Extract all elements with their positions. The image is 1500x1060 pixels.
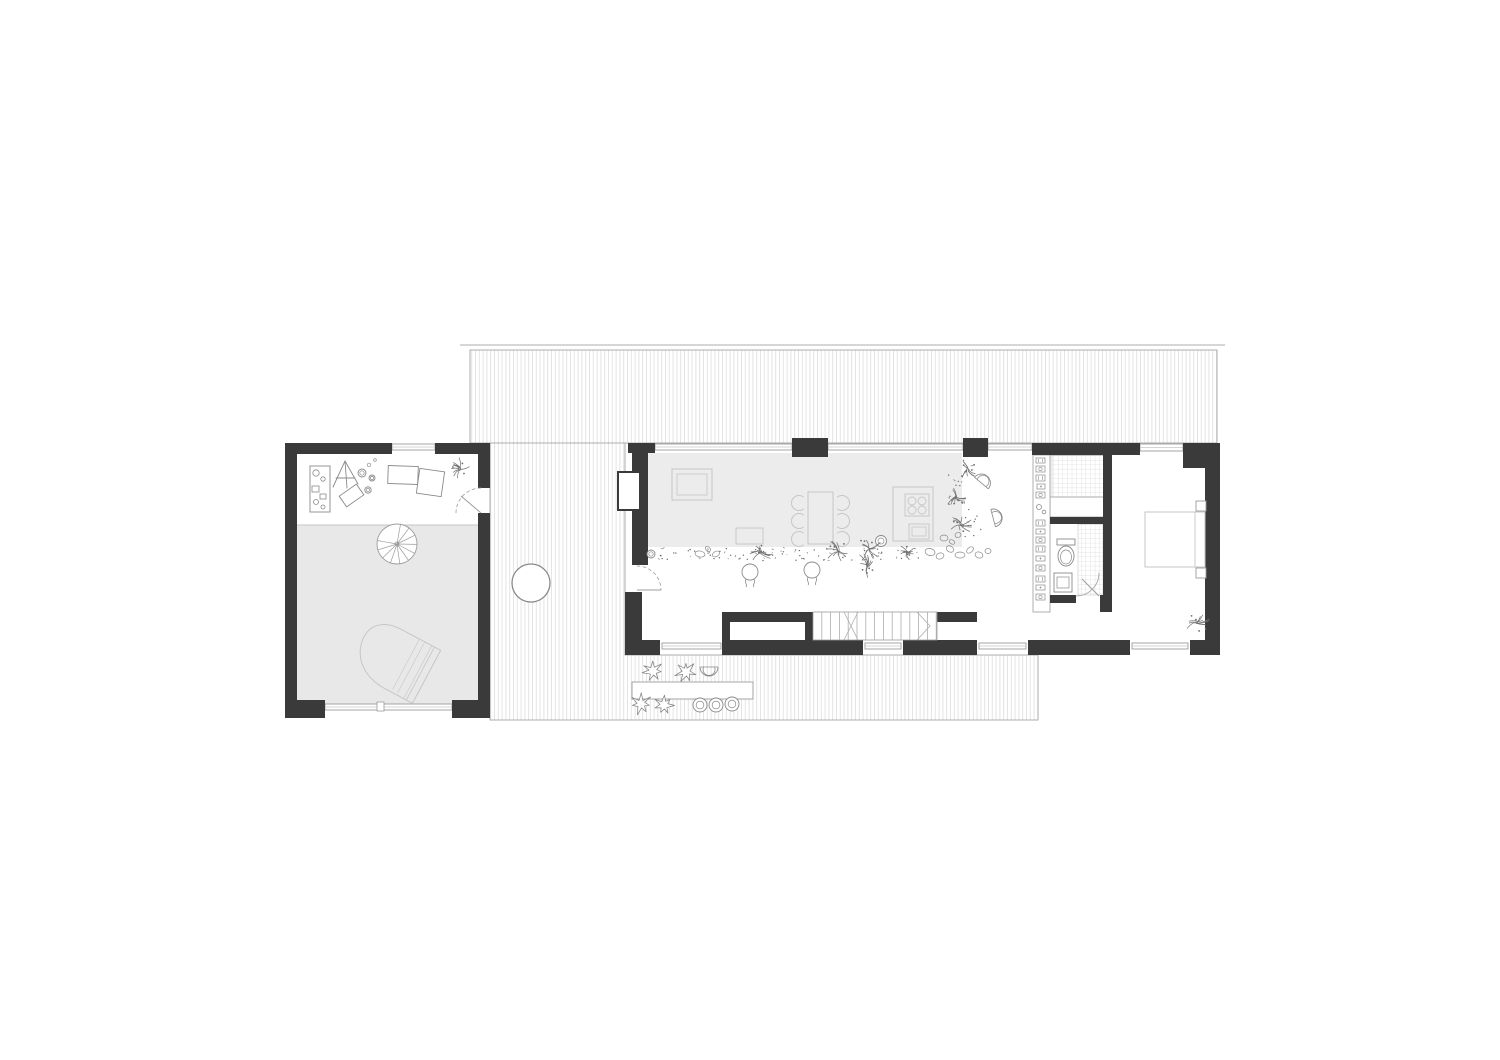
annex-stool-3 (365, 487, 371, 493)
nightstand-1 (1196, 501, 1206, 511)
bath-fixture-2 (1036, 466, 1045, 472)
north-window-1 (655, 444, 792, 450)
main-wall-left-pilaster (618, 472, 640, 510)
bath-fixture-4 (1037, 484, 1045, 489)
annex-canvas-board (339, 484, 364, 507)
outdoor-stool-3 (725, 697, 739, 711)
south-window-1 (662, 643, 721, 649)
strip-stool-left (647, 550, 655, 558)
main-entry-door-swing-arc (637, 566, 661, 590)
main-wall-right (1205, 468, 1220, 640)
annex-stool-2 (369, 475, 375, 481)
bath-divider-wall (1050, 517, 1112, 524)
hall-tulip-chair-1 (742, 564, 758, 587)
annex-kitchenette-burner-2 (321, 505, 325, 509)
annex-wall-right-b (478, 513, 490, 705)
annex-kitchenette-hob-2 (320, 494, 326, 499)
annex-table-1 (388, 465, 419, 484)
annex-kitchenette-tap (321, 477, 325, 481)
top-deck (470, 350, 1217, 443)
south-window-4 (1132, 643, 1188, 649)
outdoor-table (632, 682, 753, 699)
annex-wall-left (285, 443, 297, 718)
main-wall-north-pier-2 (963, 438, 988, 457)
main-wall-stub-1 (722, 612, 730, 655)
hall-plant (859, 554, 873, 578)
north-window-3 (988, 444, 1032, 450)
bath-fixture-13 (1036, 585, 1045, 590)
bath-fixture-10 (1036, 556, 1045, 561)
main-wall-inner-band-1 (728, 612, 807, 622)
north-window-2 (828, 444, 963, 450)
annex-kitchenette-sink (313, 470, 319, 476)
annex-wall-bottom-left (285, 700, 325, 718)
wc-tile-floor (1078, 524, 1103, 595)
bath-fixture-5 (1036, 492, 1045, 498)
main-wall-left-foot (625, 640, 660, 655)
annex-dot-1 (367, 463, 371, 467)
annex-bottom-window (325, 704, 452, 710)
bath-fixture-6 (1036, 520, 1045, 526)
outdoor-stool-1 (693, 698, 707, 712)
bath-fixture-14 (1036, 594, 1045, 600)
main-wall-north-bath (1032, 443, 1140, 455)
outdoor-stool-2 (709, 698, 723, 712)
bath-fixture-1 (1036, 458, 1045, 463)
north-window-4 (1140, 444, 1183, 451)
floor-plan-canvas (0, 0, 1500, 1060)
main-wall-bottom-right-corner (1190, 640, 1220, 655)
annex-dot-2 (374, 459, 377, 462)
annex-kitchenette-hob-1 (312, 486, 319, 492)
bath-right-wall (1103, 455, 1112, 612)
bath-fixture-7 (1036, 529, 1045, 534)
annex-bottom-window-mullion (377, 702, 384, 711)
wc-bottom-wall-right (1100, 595, 1112, 612)
annex-kitchenette-burner-1 (314, 500, 319, 505)
annex-easel (333, 461, 358, 488)
wc-toilet (1057, 539, 1075, 566)
annex-table-2 (416, 468, 444, 496)
planting-strip-specks (658, 547, 919, 561)
main-staircase (813, 612, 937, 640)
annex-door-leaf (461, 496, 481, 513)
strip-plant-1 (750, 545, 772, 560)
lounge-tub-chair-2 (991, 507, 1004, 527)
bath-fixture-11 (1036, 565, 1045, 571)
main-wall-south-1 (723, 640, 863, 655)
deck-tree-circle (512, 564, 550, 602)
main-wall-left-lower (625, 592, 642, 640)
main-wall-top-right-corner (1183, 443, 1220, 468)
lounge-tub-chair-1 (975, 470, 995, 488)
nightstand-2 (1196, 568, 1206, 578)
annex-wall-bottom-right (452, 700, 490, 718)
wc-bottom-wall-left (1050, 595, 1076, 603)
annex-wall-right-a (478, 443, 490, 488)
hall-tulip-chair-2 (804, 562, 820, 585)
right-strip-plant-1 (961, 461, 975, 477)
main-wall-south-2 (903, 640, 977, 655)
strip-plant-4 (901, 546, 914, 560)
main-wall-stub-2 (805, 612, 813, 642)
annex-plant (451, 458, 469, 479)
annex-top-window (392, 444, 435, 450)
bath-fixture-12 (1036, 576, 1045, 582)
floor-plan-page (0, 0, 1500, 1060)
annex-wall-top-a (285, 443, 392, 454)
south-window-2 (865, 643, 901, 649)
main-wall-south-3 (1028, 640, 1130, 655)
annex-spiral-staircase (377, 524, 417, 564)
bath-fixture-3 (1036, 475, 1045, 481)
south-window-3 (979, 643, 1026, 649)
main-wall-north-pier-1 (792, 438, 828, 457)
annex-stool-1 (358, 469, 366, 477)
shower-room-tile-floor (1052, 455, 1105, 497)
bed (1145, 512, 1205, 567)
bath-fixture-8 (1036, 537, 1045, 543)
bath-fixture-9 (1036, 546, 1045, 552)
